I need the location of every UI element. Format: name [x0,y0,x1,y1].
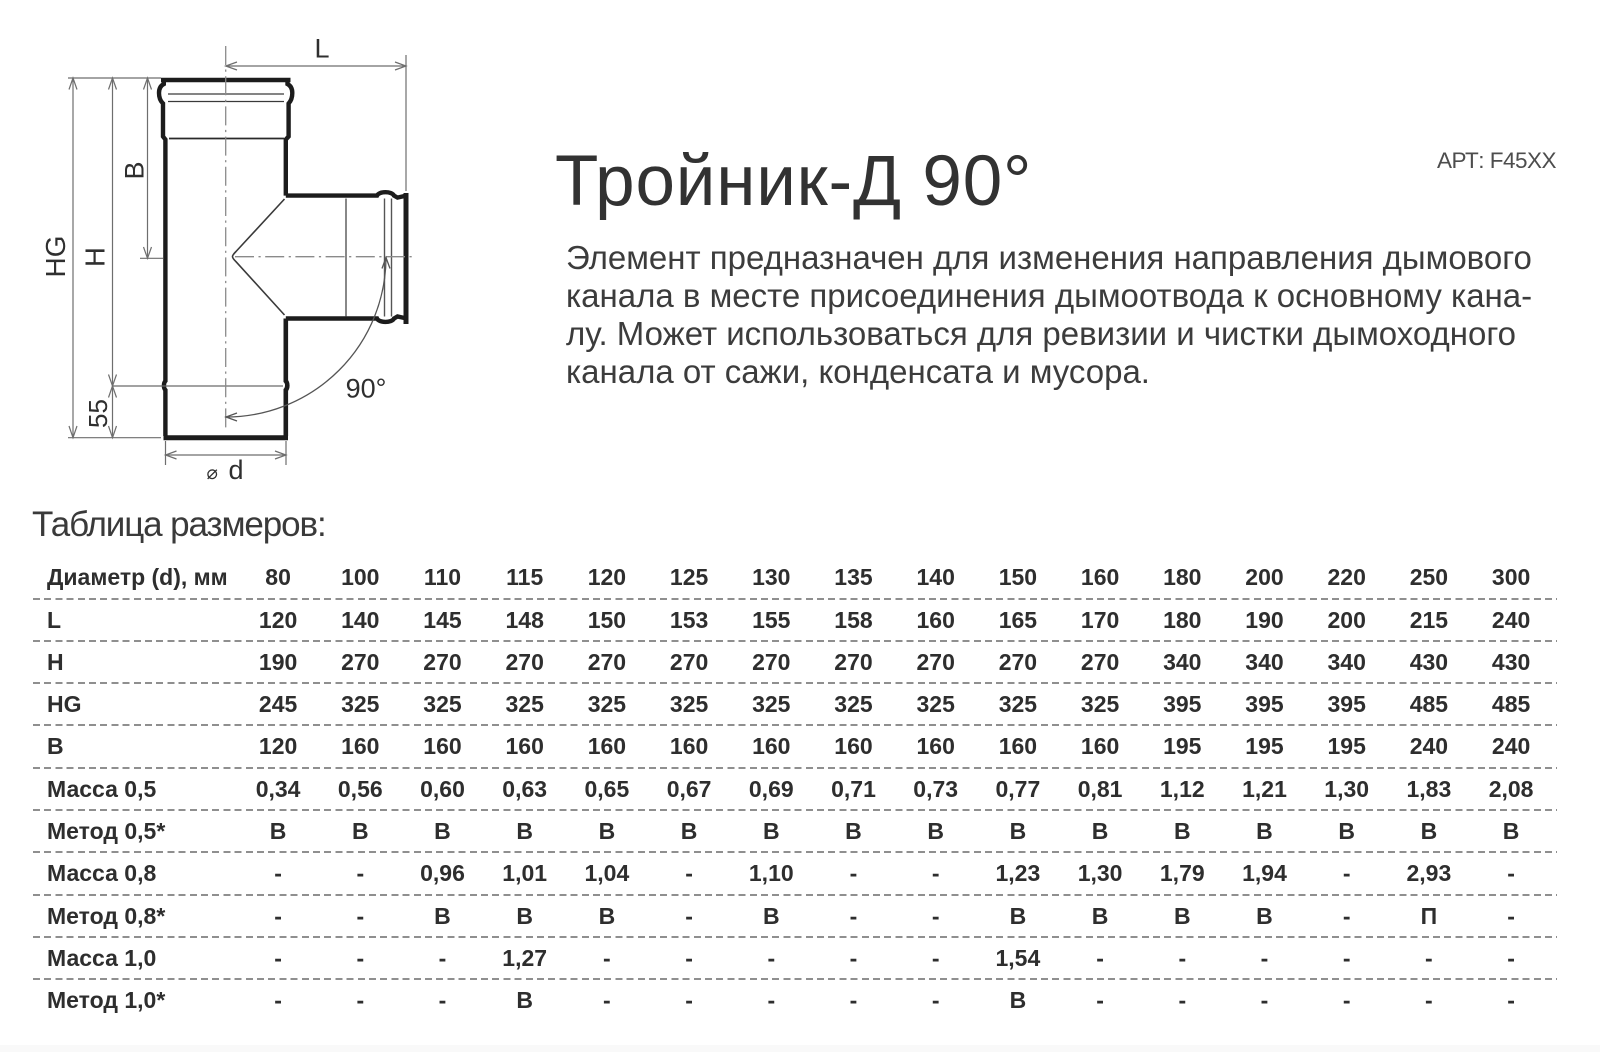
svg-text:HG: HG [40,236,71,278]
svg-text:55: 55 [83,399,113,428]
svg-text:L: L [314,34,329,64]
svg-text:H: H [80,247,111,267]
svg-text:⌀ d: ⌀ d [207,455,244,485]
svg-text:B: B [120,161,150,179]
svg-text:90°: 90° [346,374,387,404]
